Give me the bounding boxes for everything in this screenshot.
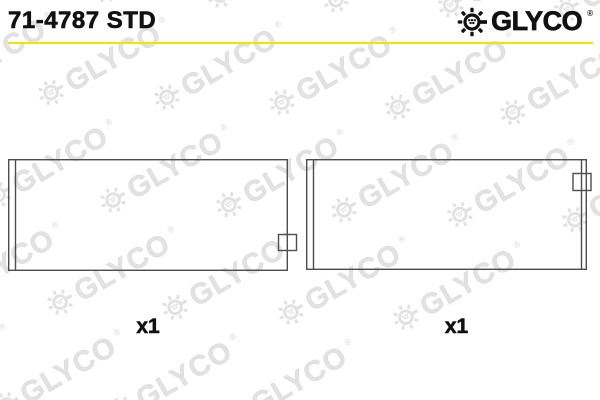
quantity-label-left: x1 bbox=[8, 315, 288, 339]
registered-mark: ® bbox=[0, 321, 7, 333]
watermark-text: GLYCO bbox=[407, 33, 515, 114]
gear-icon bbox=[379, 88, 418, 129]
bearing-shell-drawing-left bbox=[8, 159, 288, 271]
bearing-outline bbox=[307, 160, 587, 270]
gear-icon bbox=[379, 88, 416, 125]
registered-mark: ® bbox=[219, 121, 230, 133]
gear-icon bbox=[494, 93, 533, 134]
brand-logo-text: GLYCO bbox=[491, 6, 582, 37]
registered-mark: ® bbox=[587, 9, 593, 18]
gear-icon bbox=[201, 0, 240, 17]
registered-mark: ® bbox=[449, 131, 460, 143]
gear-icon bbox=[148, 78, 185, 115]
gear-icon bbox=[201, 0, 238, 13]
gear-icon bbox=[317, 0, 354, 18]
brand-logo: GLYCO ® bbox=[457, 6, 593, 37]
registered-mark: ® bbox=[272, 19, 283, 31]
watermark-text: GLYCO bbox=[15, 330, 123, 400]
watermark-text: GLYCO bbox=[522, 38, 600, 119]
gear-icon bbox=[218, 396, 255, 400]
gear-icon bbox=[103, 391, 142, 400]
gear-icon bbox=[317, 0, 356, 22]
catalog-product-image: GLYCO ® GLYCO ® bbox=[0, 0, 600, 400]
watermark-text: GLYCO bbox=[345, 0, 453, 7]
registered-mark: ® bbox=[334, 126, 345, 138]
gear-icon bbox=[148, 78, 187, 119]
gear-icon bbox=[263, 84, 300, 121]
gear-icon bbox=[457, 7, 487, 37]
watermark-glyco: GLYCO ® bbox=[201, 0, 347, 18]
registered-mark: ® bbox=[565, 136, 576, 148]
header-divider-rule bbox=[8, 42, 593, 44]
watermark-text: GLYCO bbox=[246, 340, 354, 400]
registered-mark: ® bbox=[103, 116, 114, 128]
watermark-glyco: GLYCO ® bbox=[0, 0, 1, 3]
gear-icon bbox=[32, 74, 69, 111]
gear-icon bbox=[457, 7, 487, 37]
registered-mark: ® bbox=[157, 14, 168, 26]
watermark-text: GLYCO bbox=[229, 0, 337, 2]
gear-icon bbox=[32, 74, 71, 115]
watermark-glyco: GLYCO ® bbox=[494, 32, 600, 135]
watermark-text: GLYCO bbox=[291, 28, 399, 109]
watermark-text: GLYCO bbox=[0, 325, 8, 400]
gear-icon bbox=[218, 396, 257, 400]
registered-mark: ® bbox=[387, 24, 398, 36]
quantity-label-right: x1 bbox=[306, 315, 597, 339]
watermark-glyco: GLYCO ® bbox=[148, 17, 294, 120]
bearing-shell-drawing-right bbox=[306, 159, 587, 270]
watermark-text: GLYCO bbox=[131, 335, 239, 400]
gear-icon bbox=[263, 84, 302, 125]
watermark-glyco: GLYCO ® bbox=[263, 22, 409, 125]
part-number: 71-4787 STD bbox=[8, 7, 156, 35]
bearing-outline bbox=[9, 160, 288, 271]
watermark-glyco: GLYCO ® bbox=[317, 0, 463, 23]
gear-icon bbox=[0, 0, 7, 3]
watermark-glyco: GLYCO ® bbox=[218, 334, 364, 400]
gear-icon bbox=[0, 386, 24, 400]
gear-icon bbox=[0, 386, 27, 400]
watermark-glyco: GLYCO ® bbox=[103, 329, 249, 400]
watermark-text: GLYCO bbox=[176, 23, 284, 104]
gear-icon bbox=[494, 93, 531, 130]
gear-icon bbox=[103, 391, 140, 400]
